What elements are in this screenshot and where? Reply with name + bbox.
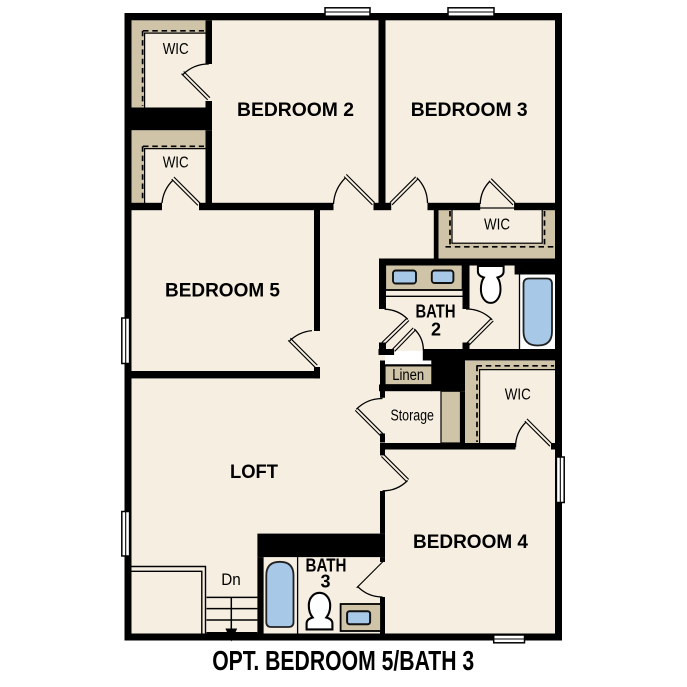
- svg-text:3: 3: [320, 572, 330, 592]
- svg-text:Dn: Dn: [221, 570, 241, 589]
- svg-text:BEDROOM 4: BEDROOM 4: [413, 531, 528, 553]
- svg-text:WIC: WIC: [505, 387, 531, 404]
- svg-text:LOFT: LOFT: [230, 461, 278, 483]
- svg-text:BEDROOM 2: BEDROOM 2: [237, 99, 354, 121]
- svg-text:Storage: Storage: [390, 408, 434, 425]
- svg-text:BEDROOM 3: BEDROOM 3: [411, 99, 528, 121]
- svg-text:BEDROOM 5: BEDROOM 5: [165, 279, 280, 301]
- svg-text:WIC: WIC: [484, 217, 510, 234]
- svg-text:BATH: BATH: [416, 302, 456, 322]
- svg-text:WIC: WIC: [163, 155, 189, 172]
- svg-text:2: 2: [431, 320, 441, 340]
- svg-text:OPT. BEDROOM 5/BATH 3: OPT. BEDROOM 5/BATH 3: [212, 645, 474, 676]
- svg-text:WIC: WIC: [163, 41, 189, 58]
- svg-text:Linen: Linen: [392, 367, 424, 384]
